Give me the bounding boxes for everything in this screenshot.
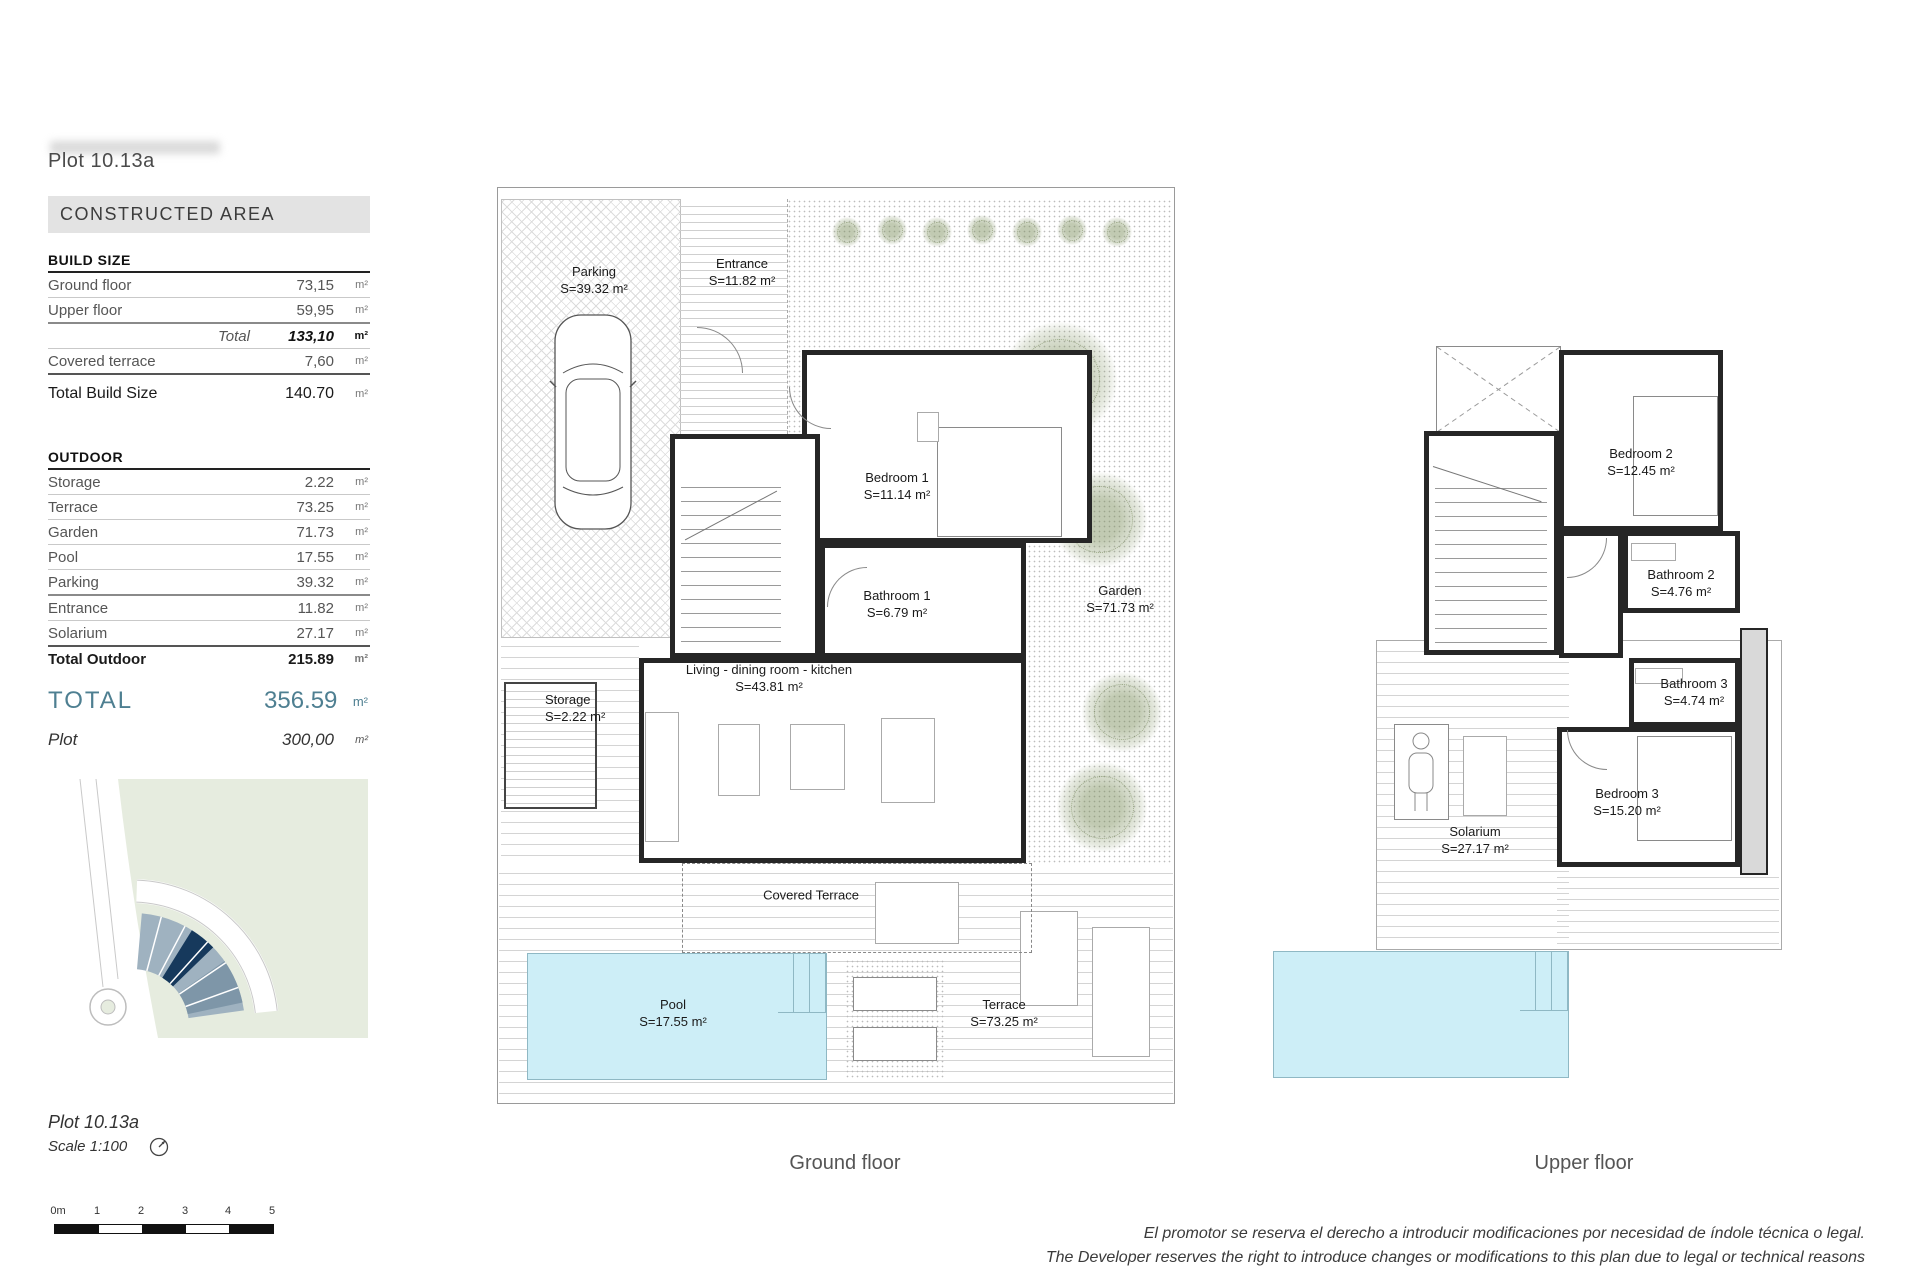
disclaimer: El promotor se reserva el derecho a intr…	[1046, 1222, 1865, 1270]
sun-lounger	[853, 977, 937, 1011]
bathroom2-label: Bathroom 2S=4.76 m²	[1647, 567, 1714, 601]
table-row: Terrace 73.25 m²	[48, 495, 370, 520]
constructed-area-header: CONSTRUCTED AREA	[48, 196, 370, 233]
covered-terrace-label: Covered Terrace	[763, 888, 859, 905]
entrance-label: EntranceS=11.82 m²	[709, 256, 776, 290]
table-row-total-build: Total Build Size 140.70 m²	[48, 379, 370, 409]
stair-landing	[681, 442, 781, 488]
outdoor-header: OUTDOOR	[48, 447, 370, 470]
sun-lounger	[853, 1027, 937, 1061]
pool-steps	[778, 954, 826, 1013]
covered-terrace-area	[682, 863, 1032, 953]
living-label: Living - dining room - kitchenS=43.81 m²	[686, 662, 852, 696]
kitchen-counter	[645, 712, 679, 842]
pool-reference	[1273, 951, 1569, 1078]
table-row: Parking 39.32 m²	[48, 570, 370, 596]
upper-staircase	[1435, 488, 1547, 646]
pool-label: PoolS=17.55 m²	[639, 997, 707, 1031]
build-size-table: BUILD SIZE Ground floor 73,15 m² Upper f…	[48, 250, 370, 409]
entrance-path	[679, 199, 788, 434]
table-row: Solarium 27.17 m²	[48, 621, 370, 647]
car-icon	[549, 311, 637, 533]
plot-unit: m²	[334, 734, 370, 746]
bedroom2-label: Bedroom 2S=12.45 m²	[1607, 446, 1675, 480]
plot-label: Plot	[48, 730, 264, 750]
bedroom3-label: Bedroom 3S=15.20 m²	[1593, 786, 1661, 820]
plant	[1057, 215, 1087, 245]
disclaimer-line-en: The Developer reserves the right to intr…	[1046, 1246, 1865, 1270]
ground-floor-caption: Ground floor	[789, 1152, 900, 1175]
table-row: Upper floor 59,95 m²	[48, 298, 370, 324]
plot-value: 300,00	[264, 730, 334, 750]
bedroom1-label: Bedroom 1S=11.14 m²	[864, 470, 931, 504]
table-row-total-outdoor: Total Outdoor 215.89 m²	[48, 647, 370, 671]
outdoor-table: OUTDOOR Storage 2.22 m² Terrace 73.25 m²…	[48, 447, 370, 671]
site-map-graphic	[48, 779, 368, 1038]
plant	[922, 217, 952, 247]
table-row: Covered terrace 7,60 m²	[48, 349, 370, 375]
plant	[832, 217, 862, 247]
table-row: Entrance 11.82 m²	[48, 596, 370, 621]
table-row: Storage 2.22 m²	[48, 470, 370, 495]
side-table	[1463, 736, 1507, 816]
footer-plot-title: Plot 10.13a	[48, 1112, 139, 1133]
tree	[1057, 762, 1147, 852]
table-row: Garden 71.73 m²	[48, 520, 370, 545]
upper-floor-plan: Bedroom 2S=12.45 m² Bathroom 2S=4.76 m² …	[1267, 338, 1834, 1128]
terrace-wall	[1740, 628, 1768, 875]
plant	[1012, 217, 1042, 247]
table-row: Ground floor 73,15 m²	[48, 273, 370, 298]
ground-floor-plan: ParkingS=39.32 m² EntranceS=11.82 m² Bed…	[497, 187, 1175, 1104]
disclaimer-line-es: El promotor se reserva el derecho a intr…	[1046, 1222, 1865, 1246]
staircase	[681, 487, 781, 649]
nightstand	[917, 412, 939, 442]
garden-label: GardenS=71.73 m²	[1086, 583, 1154, 617]
plant	[877, 215, 907, 245]
total-label: TOTAL	[48, 687, 264, 715]
scalebar	[54, 1224, 274, 1234]
plant	[1102, 217, 1132, 247]
tree	[1082, 672, 1162, 752]
build-size-header: BUILD SIZE	[48, 250, 370, 273]
outdoor-sofa	[1092, 927, 1150, 1057]
total-unit: m²	[334, 694, 370, 709]
north-compass-icon	[148, 1136, 170, 1158]
solarium-label: SolariumS=27.17 m²	[1441, 824, 1509, 858]
roof-void	[1436, 346, 1561, 433]
upper-floor-caption: Upper floor	[1535, 1152, 1634, 1175]
plant	[967, 215, 997, 245]
plan-sheet: Plot 10.13a CONSTRUCTED AREA BUILD SIZE …	[0, 0, 1920, 1280]
vanity	[1631, 543, 1676, 561]
footer-scale-label: Scale 1:100	[48, 1138, 127, 1155]
page-title: Plot 10.13a	[48, 150, 155, 173]
sun-lounger	[1394, 724, 1449, 820]
terrace-label: TerraceS=73.25 m²	[970, 997, 1038, 1031]
parking-label: ParkingS=39.32 m²	[560, 264, 628, 298]
grand-total: TOTAL 356.59 m²	[48, 684, 370, 718]
sofa	[881, 718, 935, 803]
plot-size-row: Plot 300,00 m²	[48, 726, 370, 754]
storage-label: StorageS=2.22 m²	[545, 692, 605, 726]
upper-deck-band	[1557, 867, 1779, 947]
site-location-map	[48, 779, 368, 1038]
table-row-total: Total 133,10 m²	[48, 324, 370, 349]
total-value: 356.59	[264, 687, 334, 715]
bathroom1-label: Bathroom 1S=6.79 m²	[863, 588, 930, 622]
table-row: Pool 17.55 m²	[48, 545, 370, 570]
dining-table	[790, 724, 845, 790]
pool-steps	[1520, 952, 1568, 1011]
bed	[937, 427, 1062, 537]
bathroom3-label: Bathroom 3S=4.74 m²	[1660, 676, 1727, 710]
kitchen-island	[718, 724, 760, 796]
